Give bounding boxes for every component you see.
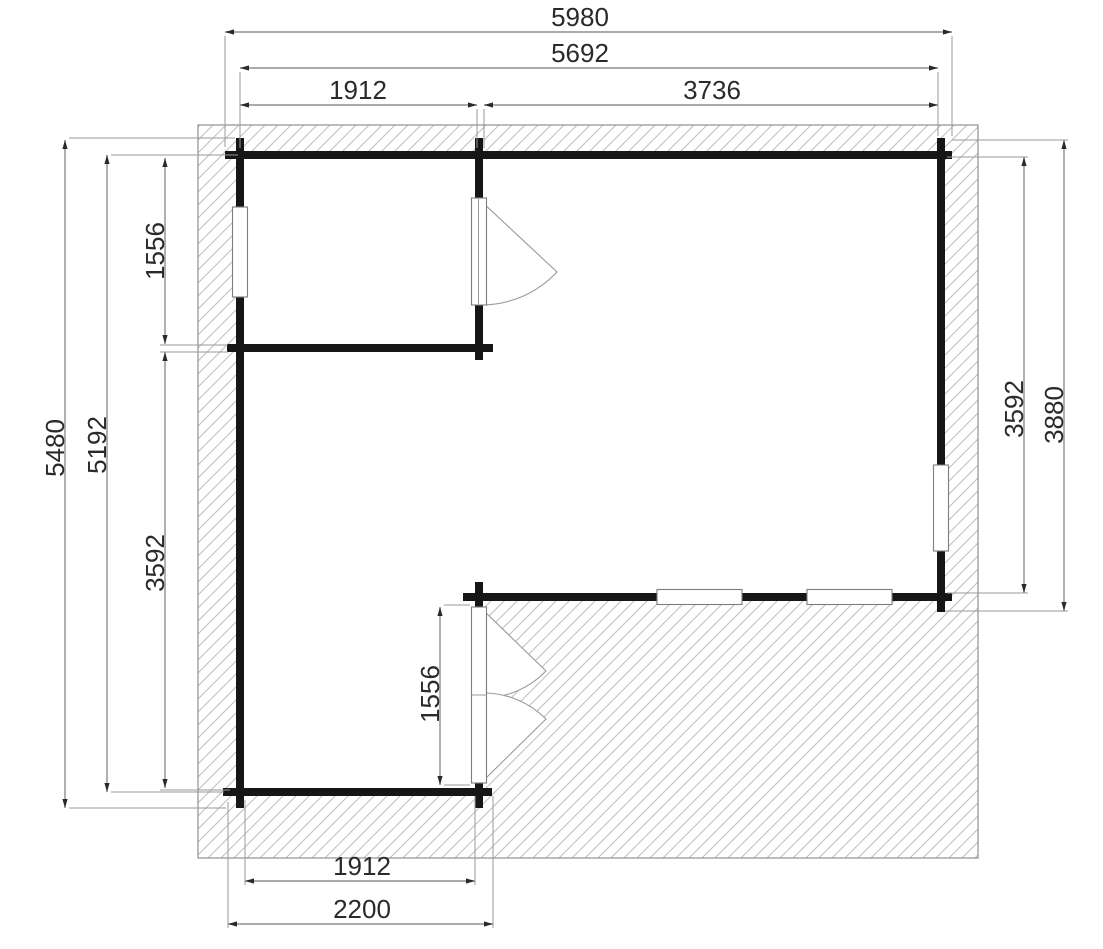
- dim-room2-width-label: 3736: [683, 75, 741, 105]
- floor-plan-page: 5980569219123736548051921556359235923880…: [0, 0, 1103, 949]
- dim-overall-height-arrow-end: [62, 799, 67, 808]
- dim-wall-width-label: 5692: [551, 38, 609, 68]
- dim-overall-width-label: 5980: [551, 2, 609, 32]
- dim-overall-height-label: 5480: [40, 419, 70, 477]
- floor-plan-drawing: 5980569219123736548051921556359235923880…: [0, 0, 1103, 949]
- dim-right-inner-height-arrow-start: [1021, 157, 1026, 166]
- dim-left-lower-height-arrow-start: [162, 352, 167, 361]
- dim-right-inner-height-label: 3592: [999, 380, 1029, 438]
- dim-room1-height-arrow-end: [162, 335, 167, 344]
- dim-bottom-overall-width-label: 2200: [333, 894, 391, 924]
- window-middle-wall-2: [807, 590, 892, 605]
- dim-bottom-room-width-label: 1912: [333, 851, 391, 881]
- dim-wall-height-arrow-start: [104, 155, 109, 164]
- dim-room1-height-arrow-start: [162, 158, 167, 167]
- dim-overall-width-arrow-start: [225, 29, 234, 34]
- dim-wall-width-arrow-start: [240, 65, 249, 70]
- dim-bottom-overall-width-arrow-start: [228, 921, 237, 926]
- dim-wall-height-arrow-end: [104, 783, 109, 792]
- window-right-wall: [934, 465, 949, 551]
- dim-terrace-door-height-label: 1556: [415, 665, 445, 723]
- dim-bottom-overall-width-arrow-end: [484, 921, 493, 926]
- dim-left-lower-height-label: 3592: [140, 534, 170, 592]
- window-middle-wall-1: [657, 590, 742, 605]
- dim-bottom-room-width-arrow-start: [245, 878, 254, 883]
- dim-wall-width-arrow-end: [929, 65, 938, 70]
- dim-right-outer-height-arrow-start: [1061, 140, 1066, 149]
- dim-room1-height-label: 1556: [140, 222, 170, 280]
- dim-overall-width-arrow-end: [943, 29, 952, 34]
- dim-room1-width-label: 1912: [329, 75, 387, 105]
- dim-bottom-room-width-arrow-end: [466, 878, 475, 883]
- dim-overall-height-arrow-start: [62, 140, 67, 149]
- dim-room1-width-arrow-start: [240, 102, 249, 107]
- dim-left-lower-height-arrow-end: [162, 779, 167, 788]
- dim-room1-width-arrow-end: [468, 102, 477, 107]
- window-left-wall: [233, 207, 248, 297]
- dim-right-inner-height-arrow-end: [1021, 584, 1026, 593]
- dim-room2-width-arrow-start: [484, 102, 493, 107]
- dim-room2-width-arrow-end: [929, 102, 938, 107]
- dim-right-outer-height-label: 3880: [1039, 386, 1069, 444]
- dim-right-outer-height-arrow-end: [1061, 602, 1066, 611]
- dim-wall-height-label: 5192: [82, 416, 112, 474]
